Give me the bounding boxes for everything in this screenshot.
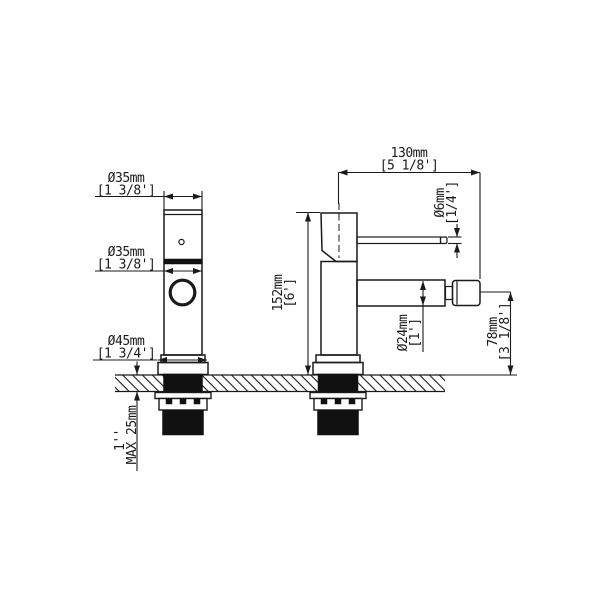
side-lever-tip bbox=[441, 237, 448, 244]
dim-deck-thickness-mm: MAX 25mm bbox=[125, 405, 140, 464]
dim-lever-diameter: Ø6mm [1/4'] bbox=[433, 181, 462, 258]
side-nut-slot bbox=[335, 399, 341, 405]
dim-body-diameter-inch: [1 3/8'] bbox=[97, 258, 156, 273]
dim-lever-diameter-inch: [1/4'] bbox=[445, 181, 460, 225]
front-base-step bbox=[161, 355, 205, 363]
dim-total-height: 152mm [6'] bbox=[271, 213, 320, 375]
front-base-flange bbox=[158, 363, 208, 375]
front-body bbox=[164, 210, 202, 355]
front-nut-slot bbox=[194, 399, 200, 405]
side-body bbox=[321, 262, 357, 356]
dim-total-height-inch: [6'] bbox=[283, 278, 298, 307]
front-shank-through bbox=[164, 374, 203, 393]
dim-base-diameter-inch: [1 3/4'] bbox=[97, 347, 156, 362]
side-aerator-neck bbox=[446, 287, 453, 300]
dim-base-diameter: Ø45mm [1 3/4'] bbox=[93, 334, 207, 362]
side-nut-slot bbox=[321, 399, 327, 405]
dim-spout-height: 78mm [3 1/8'] bbox=[445, 292, 517, 375]
technical-drawing-page: Ø35mm [1 3/8'] Ø35mm [1 3/8'] Ø45mm [1 3… bbox=[0, 0, 600, 600]
front-threaded-shank bbox=[163, 410, 204, 435]
side-threaded-shank bbox=[318, 410, 359, 435]
front-view bbox=[155, 210, 211, 435]
dim-spout-diameter: Ø24mm [1'] bbox=[396, 281, 423, 352]
side-base-step bbox=[316, 355, 360, 363]
front-washer bbox=[155, 393, 211, 399]
dim-handle-diameter: Ø35mm [1 3/8'] bbox=[95, 171, 202, 210]
front-spout-outlet-circle bbox=[170, 280, 195, 305]
side-nut-slot bbox=[349, 399, 355, 405]
dim-spout-diameter-inch: [1'] bbox=[408, 318, 423, 347]
side-lever-rod bbox=[357, 237, 441, 244]
front-nut-slot bbox=[180, 399, 186, 405]
side-spout bbox=[357, 280, 445, 306]
side-view bbox=[310, 203, 480, 435]
side-washer bbox=[310, 393, 366, 399]
front-nut-slot bbox=[166, 399, 172, 405]
front-indicator-dot bbox=[179, 239, 184, 244]
side-shank-through bbox=[318, 374, 358, 393]
faucet-technical-drawing: Ø35mm [1 3/8'] Ø35mm [1 3/8'] Ø45mm [1 3… bbox=[0, 0, 600, 600]
dim-spout-reach-inch: [5 1/8'] bbox=[380, 159, 439, 174]
front-handle-joint-band bbox=[164, 259, 202, 264]
side-base-flange bbox=[313, 363, 363, 375]
